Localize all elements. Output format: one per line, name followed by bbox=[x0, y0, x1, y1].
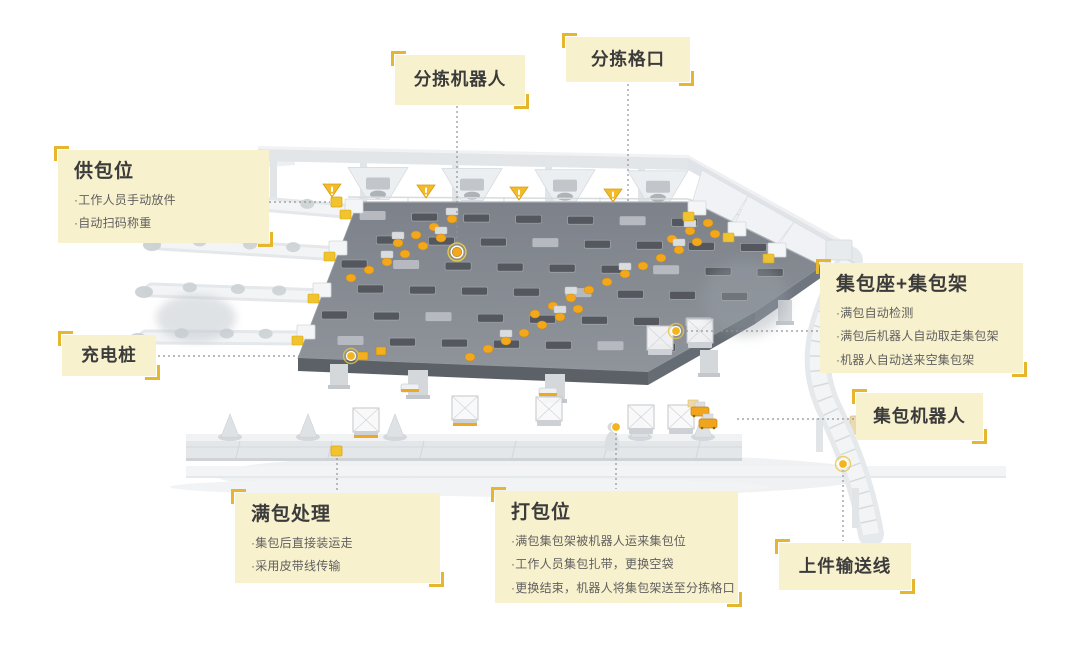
callout-title: 集包座+集包架 bbox=[836, 275, 1023, 296]
callout-full-bag-handling: 满包处理 ·集包后直接装运走 ·采用皮带线传输 bbox=[235, 493, 440, 583]
callout-title: 集包机器人 bbox=[873, 407, 966, 426]
anchor-supply-station bbox=[331, 197, 342, 207]
callout-bagging-robot: 集包机器人 bbox=[856, 393, 983, 440]
callout-bullets: ·集包后直接装运走 ·采用皮带线传输 bbox=[251, 532, 440, 579]
callout-bullets: ·工作人员手动放件 ·自动扫码称重 bbox=[74, 189, 269, 236]
callout-title: 分拣格口 bbox=[591, 50, 665, 69]
callout-title: 上件输送线 bbox=[799, 557, 892, 576]
callout-sorting-chute: 分拣格口 bbox=[566, 37, 690, 82]
callout-title: 供包位 bbox=[74, 162, 269, 183]
callout-bullet: ·自动扫码称重 bbox=[74, 212, 269, 235]
callout-supply-station: 供包位 ·工作人员手动放件 ·自动扫码称重 bbox=[58, 150, 269, 243]
callout-bullets: ·满包集包架被机器人运来集包位 ·工作人员集包扎带，更换空袋 ·更换结束，机器人… bbox=[511, 530, 738, 600]
anchor-sorting-robot-highlight bbox=[448, 243, 466, 261]
cage-carrier-robots bbox=[353, 384, 562, 438]
callout-title: 分拣机器人 bbox=[414, 70, 507, 89]
callout-loading-conveyor: 上件输送线 bbox=[779, 543, 911, 590]
infographic-canvas: 分拣机器人 分拣格口 供包位 ·工作人员手动放件 ·自动扫码称重 集包座+集包架… bbox=[0, 0, 1080, 641]
callout-title: 满包处理 bbox=[251, 505, 440, 526]
anchor-full-bag-handling bbox=[331, 446, 342, 456]
callout-bullet: ·满包自动检测 bbox=[836, 302, 1023, 325]
callout-bullet: ·采用皮带线传输 bbox=[251, 555, 440, 578]
callout-bullets: ·满包自动检测 ·满包后机器人自动取走集包架 ·机器人自动送来空集包架 bbox=[836, 302, 1023, 372]
callout-bullet: ·机器人自动送来空集包架 bbox=[836, 349, 1023, 372]
callout-bullet: ·工作人员集包扎带，更换空袋 bbox=[511, 553, 738, 576]
callout-bullet: ·工作人员手动放件 bbox=[74, 189, 269, 212]
callout-packing-station: 打包位 ·满包集包架被机器人运来集包位 ·工作人员集包扎带，更换空袋 ·更换结束… bbox=[495, 491, 738, 603]
callout-title: 充电桩 bbox=[81, 346, 137, 365]
callout-sorting-robot: 分拣机器人 bbox=[395, 55, 525, 105]
callout-bag-seat-rack: 集包座+集包架 ·满包自动检测 ·满包后机器人自动取走集包架 ·机器人自动送来空… bbox=[820, 263, 1023, 373]
anchor-packing-station bbox=[612, 423, 621, 432]
callout-bullet: ·集包后直接装运走 bbox=[251, 532, 440, 555]
callout-charging-pile: 充电桩 bbox=[62, 335, 156, 376]
callout-bullet: ·满包后机器人自动取走集包架 bbox=[836, 325, 1023, 348]
callout-title: 打包位 bbox=[511, 503, 738, 524]
callout-bullet: ·满包集包架被机器人运来集包位 bbox=[511, 530, 738, 553]
callout-bullet: ·更换结束，机器人将集包架送至分拣格口 bbox=[511, 577, 738, 600]
